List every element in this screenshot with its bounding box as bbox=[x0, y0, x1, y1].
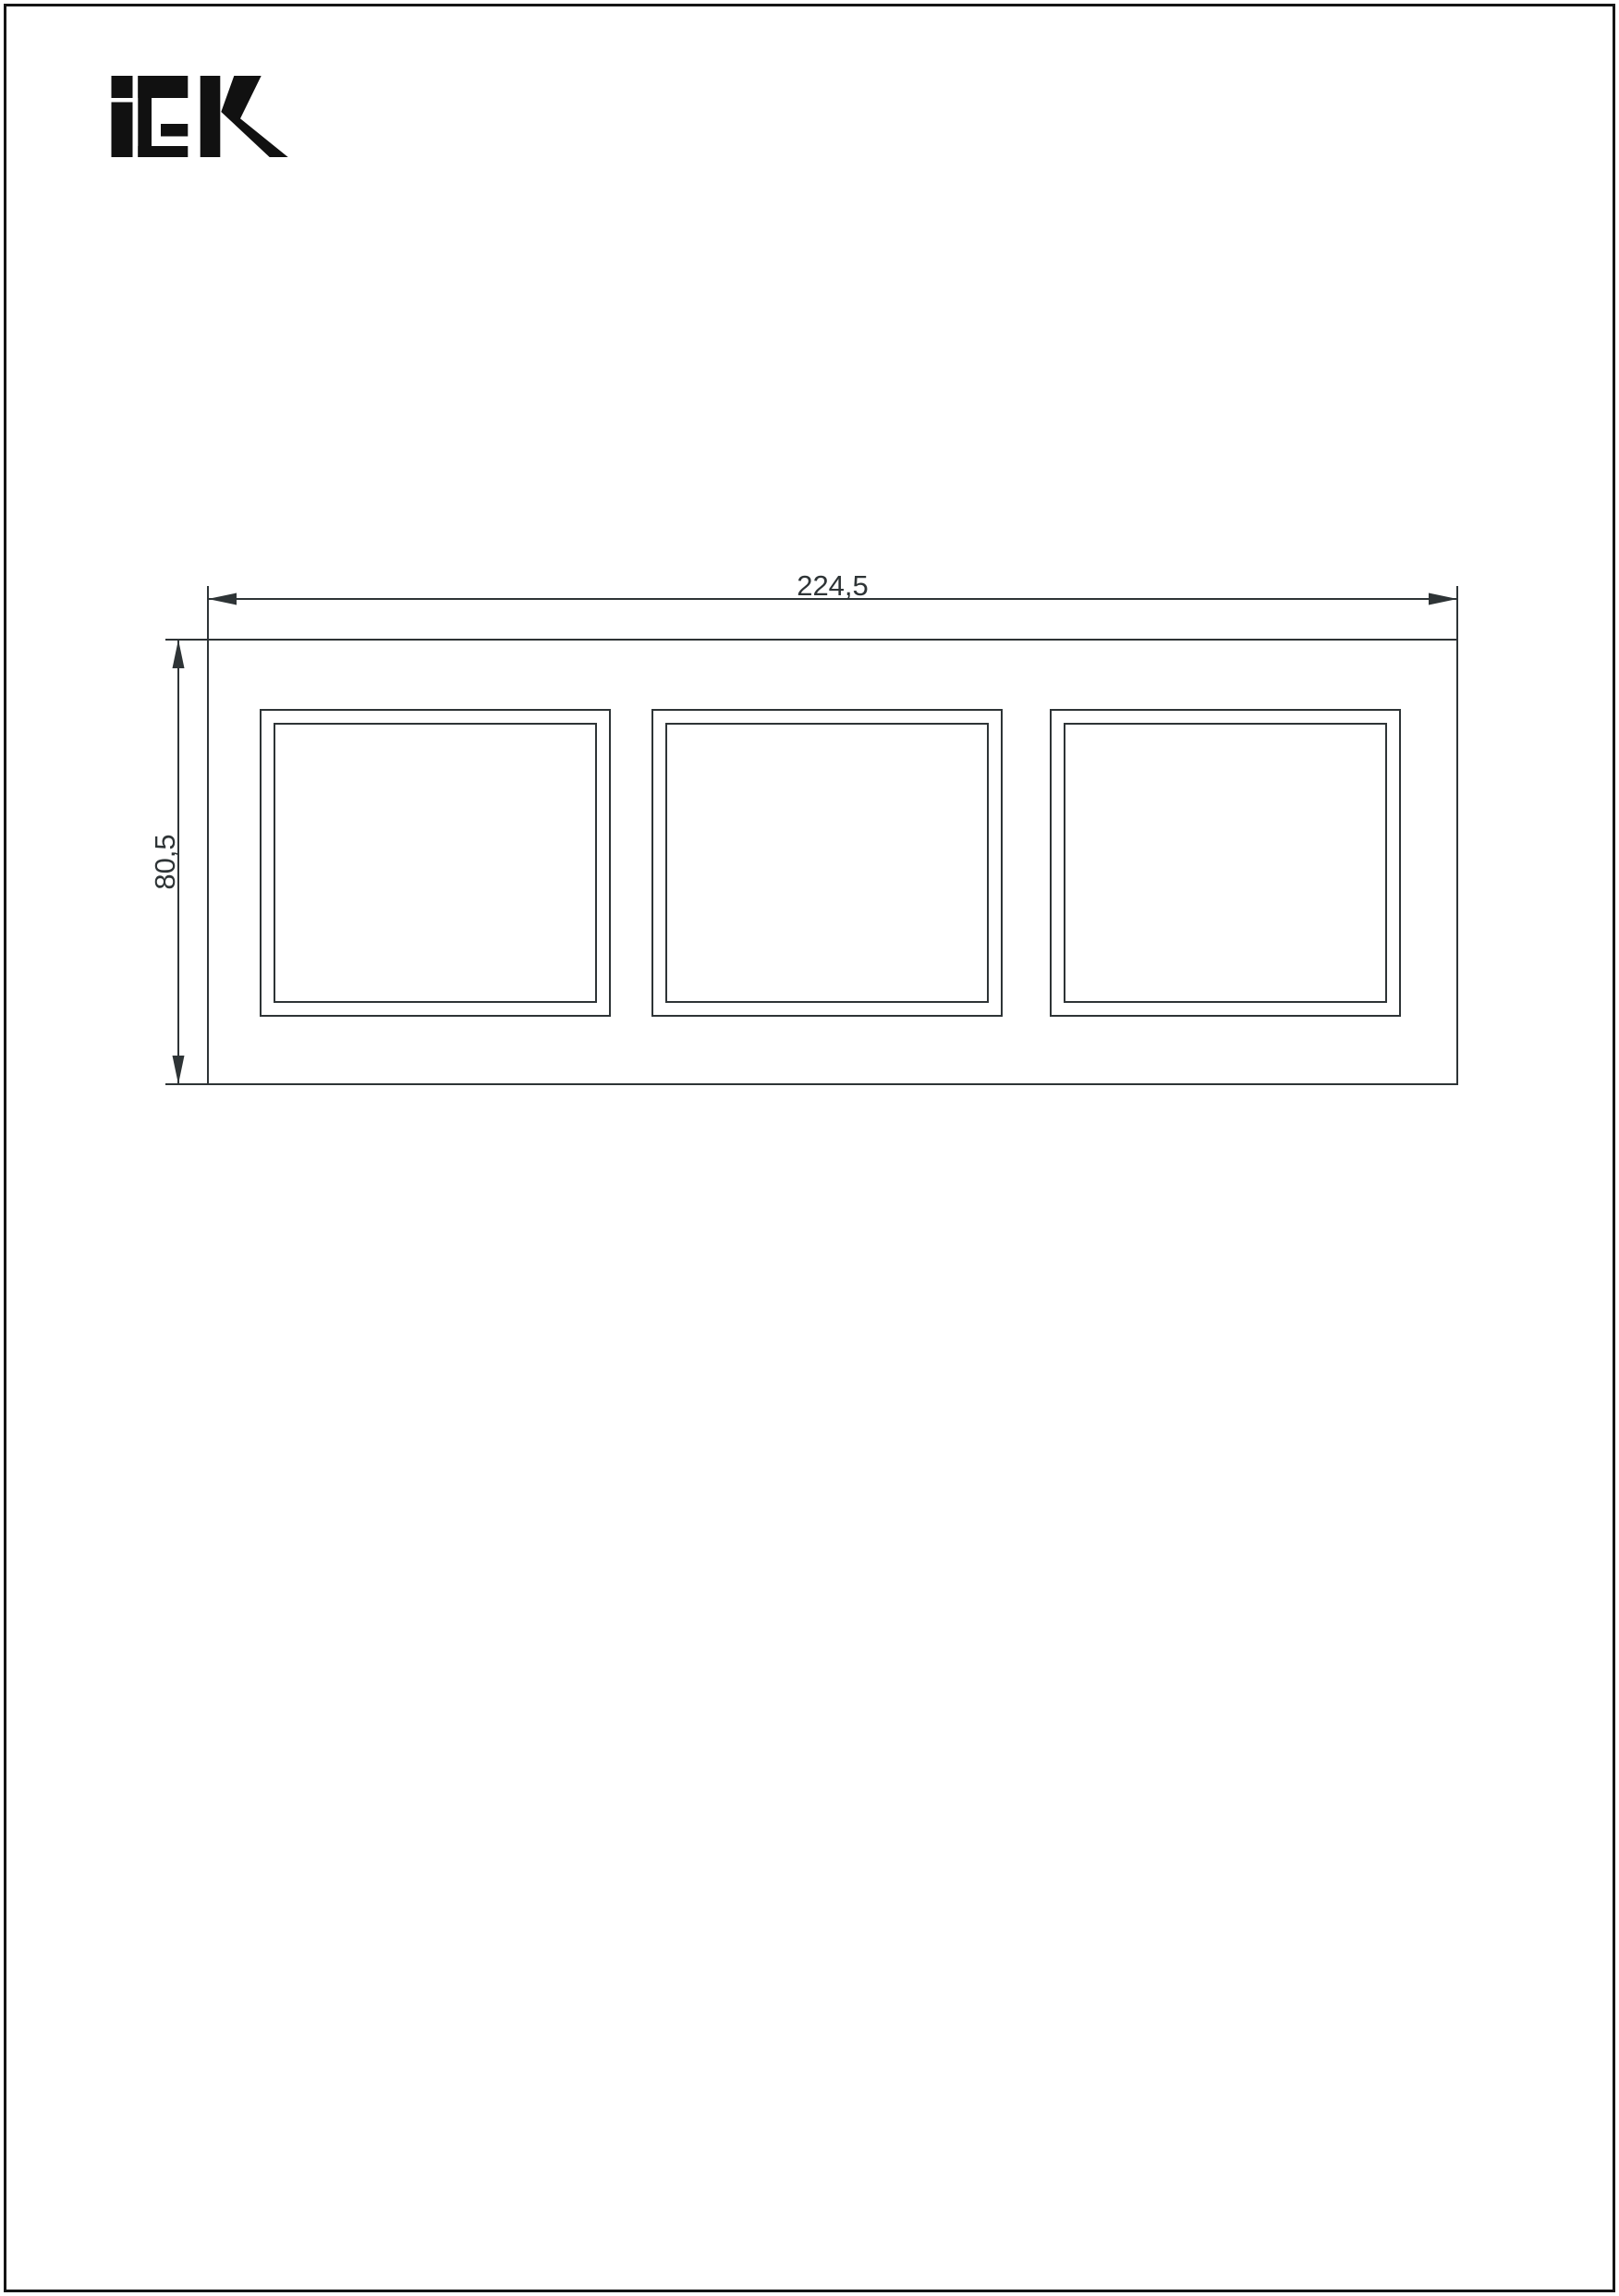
width-dimension: 224,5 bbox=[208, 569, 1457, 658]
window-3-outer-outline bbox=[1051, 710, 1400, 1016]
arrow-up-icon bbox=[173, 640, 185, 668]
frame-window-1 bbox=[261, 710, 610, 1016]
height-dimension: 80,5 bbox=[149, 640, 208, 1084]
window-1-inner-outline bbox=[274, 724, 596, 1002]
frame-outer-outline bbox=[208, 640, 1457, 1084]
width-dimension-label: 224,5 bbox=[797, 569, 869, 602]
height-dimension-label: 80,5 bbox=[149, 834, 181, 889]
window-2-outer-outline bbox=[652, 710, 1002, 1016]
frame-window-2 bbox=[652, 710, 1002, 1016]
window-3-inner-outline bbox=[1065, 724, 1386, 1002]
dimension-drawing: 224,5 80,5 bbox=[0, 0, 1619, 2296]
arrow-right-icon bbox=[1429, 593, 1457, 605]
window-2-inner-outline bbox=[666, 724, 988, 1002]
frame-window-3 bbox=[1051, 710, 1400, 1016]
arrow-down-icon bbox=[173, 1056, 185, 1084]
arrow-left-icon bbox=[208, 593, 237, 605]
window-1-outer-outline bbox=[261, 710, 610, 1016]
